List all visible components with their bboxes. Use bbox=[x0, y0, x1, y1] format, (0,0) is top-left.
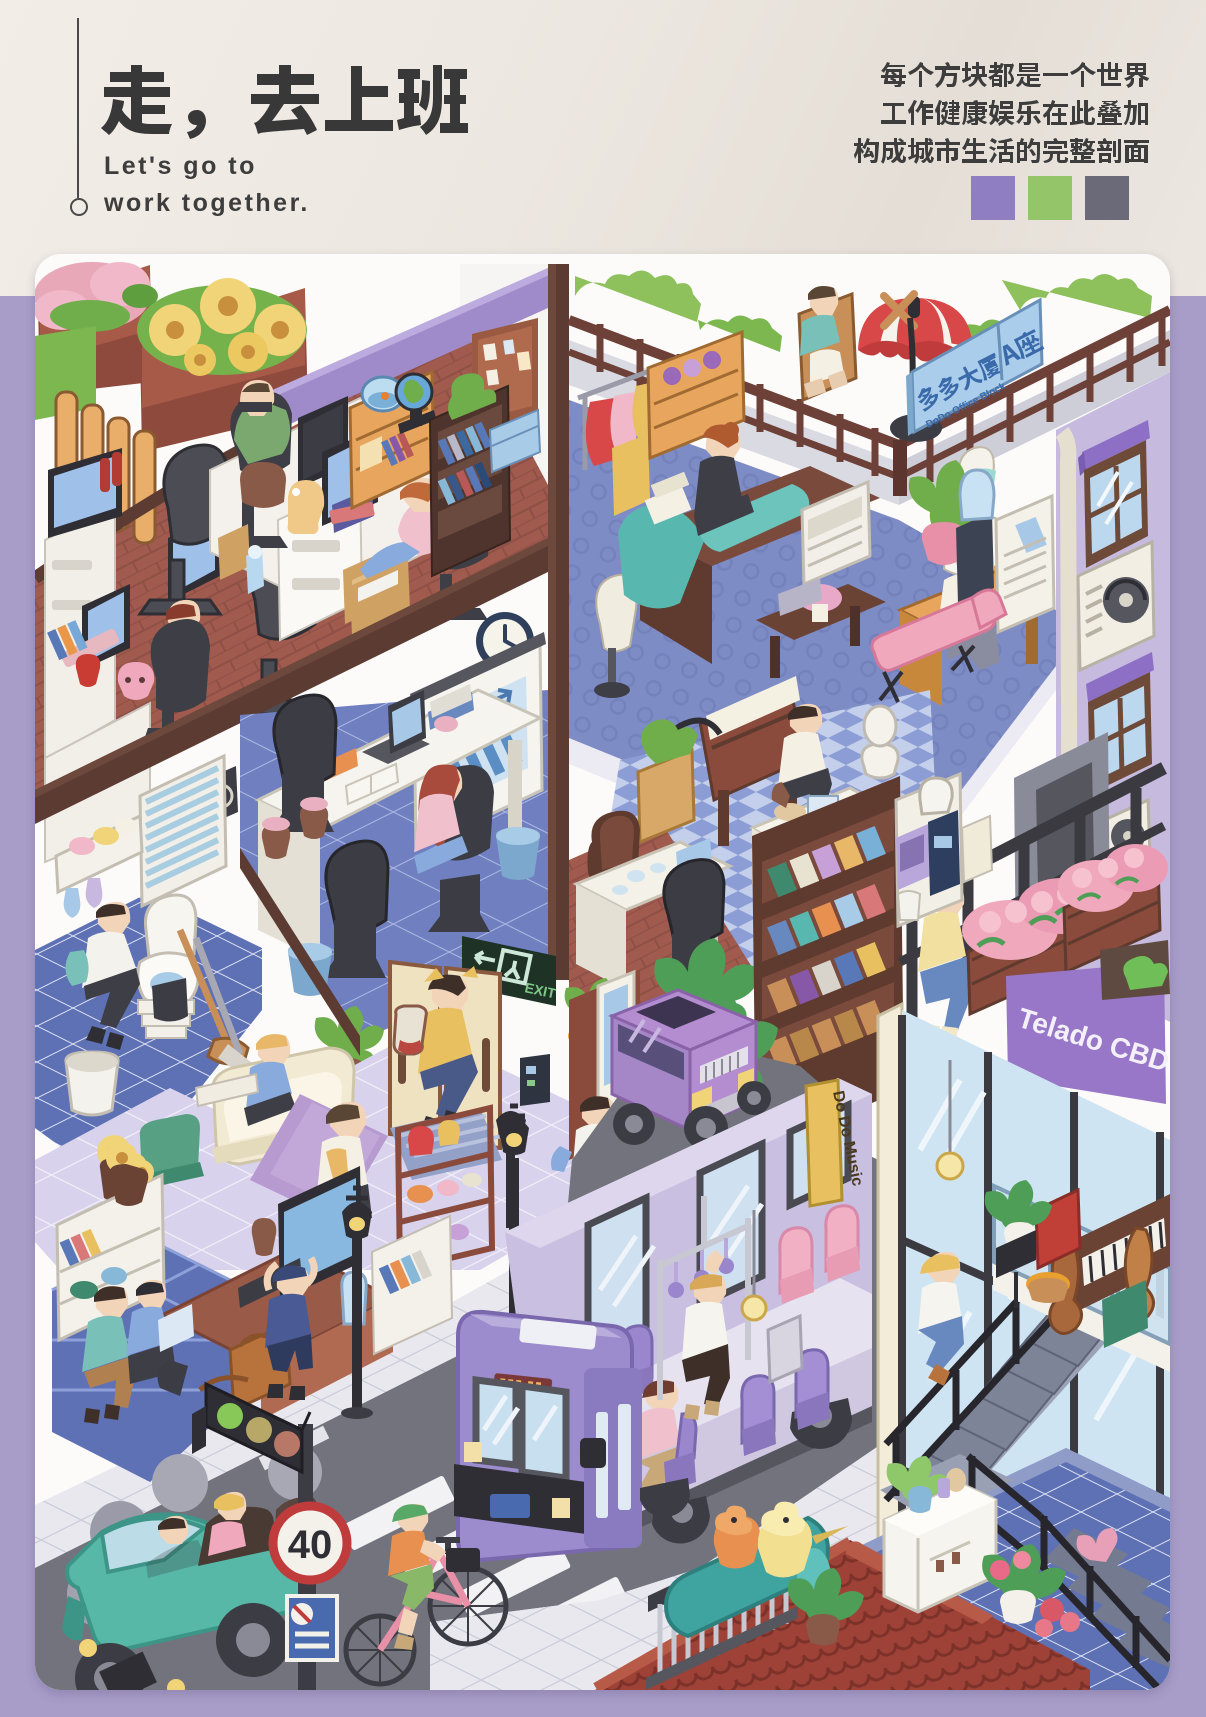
svg-text:40: 40 bbox=[288, 1523, 333, 1567]
